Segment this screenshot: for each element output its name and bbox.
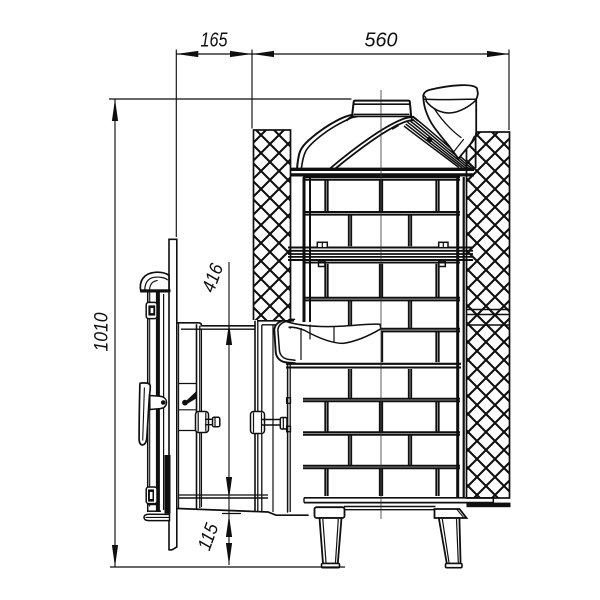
svg-text:560: 560 xyxy=(365,30,398,52)
svg-text:1010: 1010 xyxy=(92,312,113,351)
svg-text:165: 165 xyxy=(201,30,229,52)
